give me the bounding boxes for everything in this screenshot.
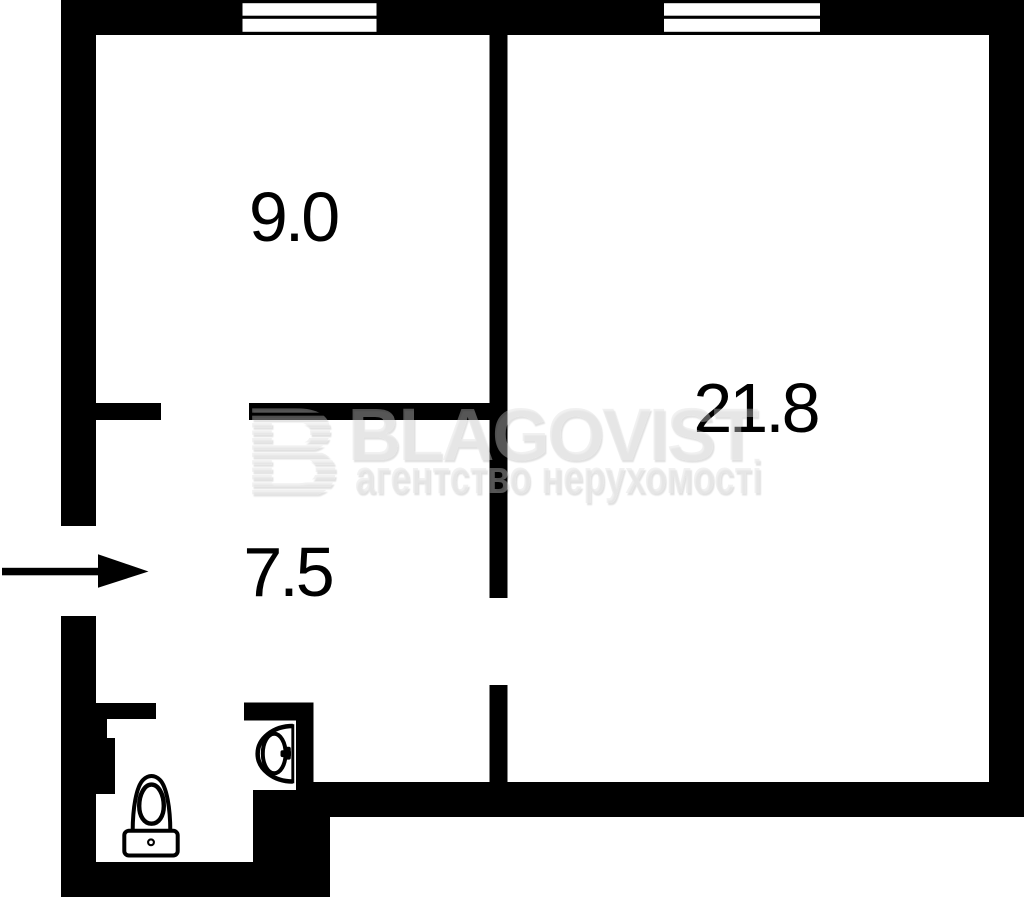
svg-text:9.0: 9.0 [249,178,338,256]
svg-text:B: B [243,382,342,526]
svg-text:7.5: 7.5 [243,533,331,611]
svg-text:агентство нерухомості: агентство нерухомості [355,450,762,503]
